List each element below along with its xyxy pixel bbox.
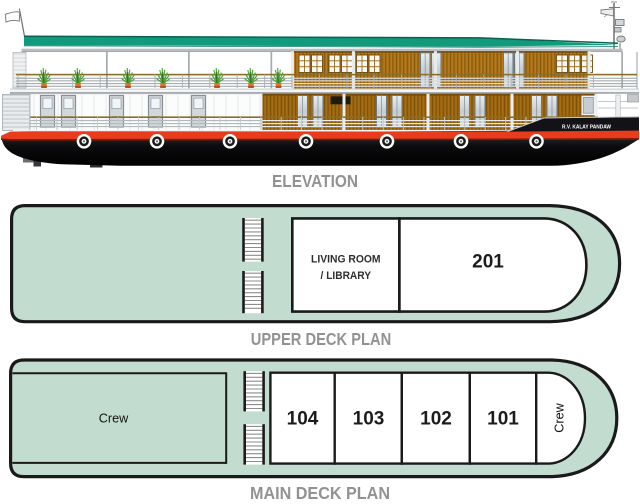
svg-text:Crew: Crew [99,412,129,426]
svg-text:103: 103 [353,409,385,430]
svg-text:201: 201 [472,252,504,273]
svg-text:Crew: Crew [553,402,567,432]
svg-text:MAIN DECK PLAN: MAIN DECK PLAN [250,483,390,503]
svg-text:ELEVATION: ELEVATION [272,171,358,191]
svg-text:102: 102 [420,409,452,430]
svg-text:LIVING ROOM: LIVING ROOM [311,254,381,266]
svg-text:UPPER DECK PLAN: UPPER DECK PLAN [251,329,392,349]
svg-text:/ LIBRARY: / LIBRARY [321,270,372,282]
svg-text:R.V. KALAY PANDAW: R.V. KALAY PANDAW [562,125,612,131]
svg-text:104: 104 [287,409,319,430]
svg-text:101: 101 [487,409,519,430]
